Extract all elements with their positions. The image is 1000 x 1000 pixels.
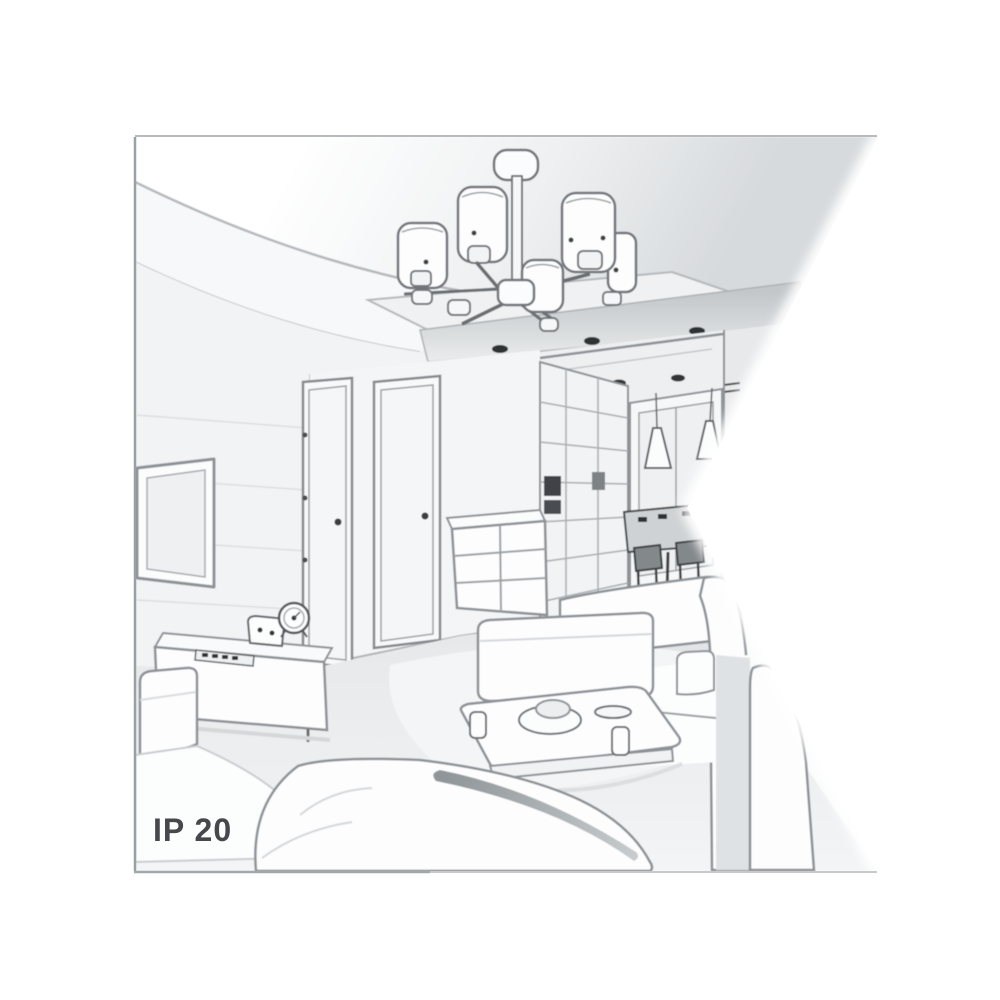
cup bbox=[612, 727, 629, 755]
wardrobe-dark-cell bbox=[544, 500, 561, 514]
door-handle-icon bbox=[335, 519, 342, 526]
door-hinge-icon bbox=[303, 433, 308, 438]
door-hinge-icon bbox=[303, 496, 308, 501]
chair-back bbox=[634, 545, 662, 571]
ip-rating-label: IP 20 bbox=[153, 812, 232, 848]
chandelier-shade bbox=[562, 193, 615, 272]
product-illustration: IP 20 bbox=[0, 0, 1000, 1000]
sofa-armrest-cap bbox=[677, 651, 714, 695]
table-item bbox=[638, 517, 647, 522]
room-illustration bbox=[135, 137, 880, 871]
door-hinge-icon bbox=[303, 558, 308, 563]
cup bbox=[470, 712, 486, 738]
chandelier-stem bbox=[512, 176, 522, 286]
remote-button bbox=[232, 656, 238, 660]
sofa-shadow-strip bbox=[716, 655, 750, 870]
spotlight-icon bbox=[671, 375, 685, 382]
chandelier-hub bbox=[498, 280, 534, 305]
wardrobe-dark-cell bbox=[592, 472, 605, 490]
chandelier-shade bbox=[458, 187, 507, 263]
table-item bbox=[658, 514, 667, 519]
door-right bbox=[374, 376, 440, 648]
room-sketch-canvas: IP 20 bbox=[0, 0, 1000, 1000]
chandelier-cup bbox=[448, 300, 470, 315]
alarm-clock bbox=[279, 603, 309, 637]
decor-dot bbox=[258, 628, 263, 633]
bowl-food bbox=[536, 700, 570, 718]
dresser bbox=[447, 510, 547, 615]
door-left bbox=[303, 378, 353, 667]
tv bbox=[137, 459, 214, 587]
chandelier-cup bbox=[540, 318, 558, 331]
spotlight-icon bbox=[584, 337, 600, 345]
remote-button bbox=[202, 653, 208, 657]
decor-dot bbox=[270, 631, 275, 636]
sofa-left-armrest bbox=[140, 668, 197, 755]
chandelier-shade bbox=[398, 223, 447, 288]
plate bbox=[595, 706, 631, 718]
spotlight-icon bbox=[492, 345, 508, 353]
remote-button bbox=[222, 655, 228, 659]
wardrobe-dark-cell bbox=[544, 476, 561, 496]
door-handle-icon bbox=[422, 513, 429, 520]
remote-button bbox=[212, 654, 218, 658]
tv-screen bbox=[147, 470, 205, 577]
chandelier-cup bbox=[412, 290, 432, 304]
